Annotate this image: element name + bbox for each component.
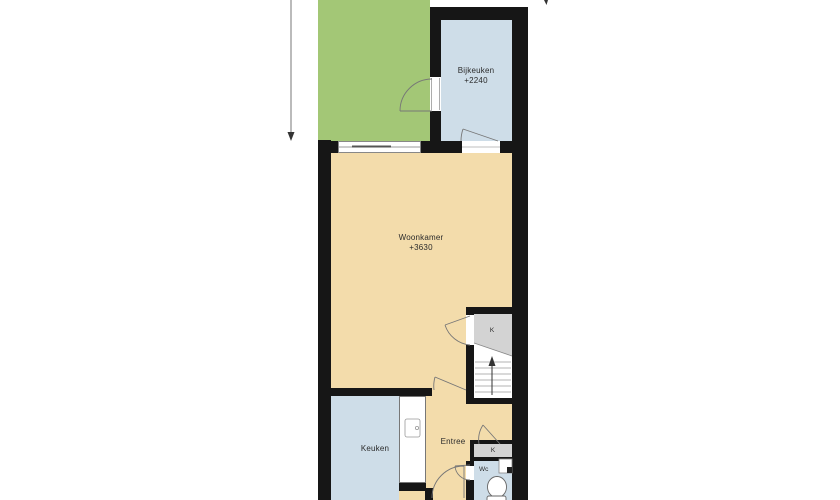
meter-closet-name: K <box>491 447 495 454</box>
room-label-woonkamer: Woonkamer +3630 <box>361 233 481 253</box>
wall-facade-right <box>500 141 512 153</box>
woonkamer-name: Woonkamer <box>361 233 481 243</box>
wall-meterclosets-bottom <box>470 457 512 461</box>
floor-plan-canvas: Bijkeuken +2240 Woonkamer +3630 Keuken E… <box>0 0 840 500</box>
bijkeuken-ceiling-height: +2240 <box>426 76 526 86</box>
garden-area <box>318 0 430 141</box>
wall-wc-left-lower <box>466 480 474 500</box>
wall-facade-mid <box>421 141 462 153</box>
wall-counter-bottom <box>399 483 426 491</box>
entree-name: Entree <box>403 437 503 447</box>
north-arrow-tip-icon <box>544 0 548 5</box>
bijkeuken-door-gap <box>462 141 500 153</box>
room-label-meter-closet: K <box>471 447 515 454</box>
bijkeuken-name: Bijkeuken <box>426 66 526 76</box>
room-label-entree: Entree <box>403 437 503 447</box>
woonkamer-ceiling-height: +3630 <box>361 243 481 253</box>
woonkamer-window <box>338 141 421 153</box>
wall-stair-bottom <box>466 398 512 404</box>
stair-closet-name: K <box>490 327 494 334</box>
wall-frontdoor-jamb <box>425 488 433 500</box>
wall-stair-left-upper <box>466 307 474 315</box>
room-label-stair-closet: K <box>470 327 514 334</box>
room-label-bijkeuken: Bijkeuken +2240 <box>426 66 526 86</box>
wall-bijkeuken-left-lower <box>430 111 441 143</box>
wall-facade-left <box>331 141 338 153</box>
wall-stair-left-lower <box>466 345 474 404</box>
wall-keuken-woonkamer <box>331 388 432 396</box>
wc-name: Wc <box>479 466 488 473</box>
dimension-arrow-icon <box>288 0 295 141</box>
room-label-wc: Wc <box>479 466 495 473</box>
wc-door-gap <box>466 466 474 480</box>
